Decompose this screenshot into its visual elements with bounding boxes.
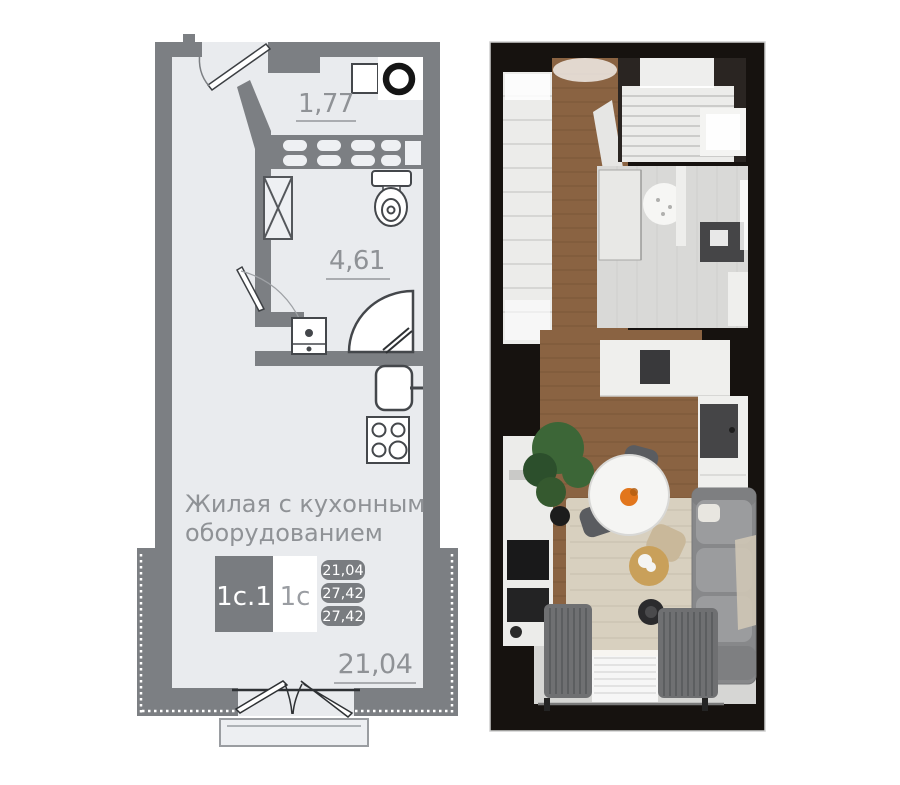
unit-badge: 1с.1 1с 21,04 27,42 27,42: [215, 556, 365, 632]
area-pill-value: 21,04: [322, 563, 364, 579]
shower: [599, 170, 641, 260]
bathroom-render: [597, 166, 748, 328]
floor-plan-screenshot: 1,77 4,61 21,04 Жилая с кухонным оборудо…: [0, 0, 900, 785]
floor-plan-3d: [490, 42, 765, 731]
living-area-label: 21,04: [338, 649, 413, 680]
washbasin-icon: [352, 64, 378, 93]
tv-screen: [507, 540, 549, 580]
room-name-line2: оборудованием: [185, 519, 383, 547]
bath-partition: [676, 166, 686, 246]
sink-cabinet-icon: [292, 318, 326, 354]
toilet-icon: [372, 171, 411, 226]
pillow: [698, 504, 720, 522]
balcony-slab: [220, 719, 368, 746]
curtain-left: [544, 604, 592, 698]
duct-shaft-icon: [264, 177, 292, 239]
plant-pot: [550, 506, 570, 526]
curtain-right: [658, 608, 718, 698]
area-pill-value: 27,42: [322, 586, 364, 602]
unit-number: 1с.1: [216, 582, 272, 612]
area-pill-value: 27,42: [322, 609, 364, 625]
bathroom-area-label: 4,61: [329, 246, 385, 276]
sheer-curtain: [592, 650, 658, 702]
throw-blanket: [735, 535, 756, 630]
bath-door: [728, 272, 748, 326]
room-name-line1: Жилая с кухонным: [185, 490, 425, 518]
cooktop: [640, 350, 670, 384]
hallway-area-label: 1,77: [298, 89, 354, 119]
closet-render: [618, 58, 746, 162]
plan-type: 1с: [280, 582, 311, 612]
cooktop-icon: [367, 417, 409, 463]
plans-canvas: 1,77 4,61 21,04 Жилая с кухонным оборудо…: [0, 0, 900, 785]
washing-machine-icon: [378, 57, 423, 100]
armchair: [629, 546, 669, 586]
floor-plan-2d: 1,77 4,61 21,04 Жилая с кухонным оборудо…: [137, 34, 458, 746]
